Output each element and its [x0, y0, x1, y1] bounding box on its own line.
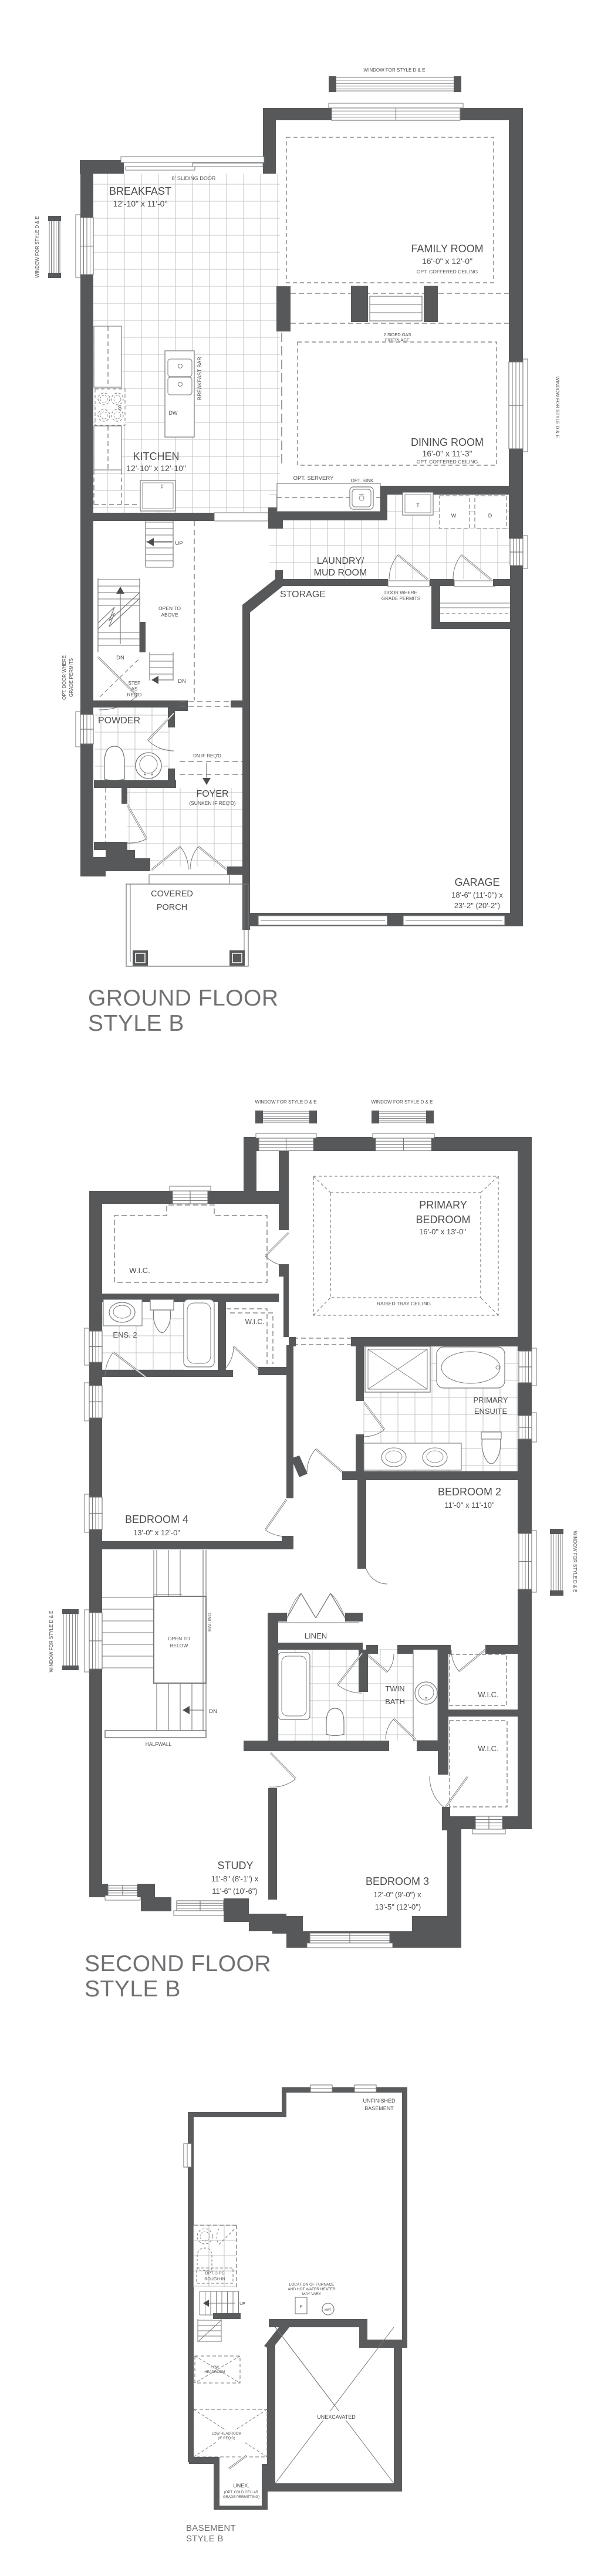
- svg-text:(OPT. COLD CELLAR: (OPT. COLD CELLAR: [224, 2491, 259, 2494]
- svg-text:13'-0" x 12'-0": 13'-0" x 12'-0": [133, 1528, 180, 1537]
- svg-text:LAUNDRY/: LAUNDRY/: [317, 556, 364, 566]
- svg-text:COVERED: COVERED: [151, 889, 193, 899]
- svg-text:D: D: [488, 513, 492, 519]
- svg-text:GARAGE: GARAGE: [454, 876, 499, 888]
- svg-text:GRADE PERMITTING): GRADE PERMITTING): [223, 2496, 259, 2499]
- svg-text:W.I.C.: W.I.C.: [478, 1690, 498, 1699]
- svg-text:11'-0" x 11'-10": 11'-0" x 11'-10": [444, 1501, 495, 1509]
- svg-text:MAY VARY: MAY VARY: [302, 2292, 322, 2296]
- svg-text:RAILING: RAILING: [207, 1613, 212, 1631]
- svg-text:STYLE B: STYLE B: [186, 2534, 224, 2544]
- svg-text:AS: AS: [131, 686, 138, 692]
- svg-text:T: T: [416, 502, 420, 508]
- svg-text:MUD ROOM: MUD ROOM: [314, 568, 367, 578]
- svg-text:11'-6" (10'-6"): 11'-6" (10'-6"): [212, 1887, 258, 1895]
- svg-text:13'-5" (12'-0"): 13'-5" (12'-0"): [375, 1903, 421, 1911]
- svg-text:12'-10" x 11'-0": 12'-10" x 11'-0": [113, 199, 168, 208]
- svg-text:BEDROOM 2: BEDROOM 2: [438, 1486, 501, 1498]
- svg-text:ABOVE: ABOVE: [161, 612, 178, 618]
- svg-text:POWDER: POWDER: [98, 716, 140, 726]
- svg-text:12'-10" x 12'-10": 12'-10" x 12'-10": [126, 463, 186, 473]
- svg-text:DN IF REQ'D: DN IF REQ'D: [193, 753, 221, 759]
- svg-text:12'-0" (9'-0") x: 12'-0" (9'-0") x: [373, 1890, 421, 1899]
- svg-text:PORCH: PORCH: [157, 903, 187, 912]
- svg-text:BEDROOM 3: BEDROOM 3: [366, 1876, 429, 1887]
- svg-text:GRADE PERMITS: GRADE PERMITS: [69, 658, 74, 697]
- svg-text:18'-6" (11'-0") x: 18'-6" (11'-0") x: [451, 891, 503, 899]
- svg-text:OPEN TO: OPEN TO: [168, 1636, 190, 1641]
- svg-text:BEDROOM 4: BEDROOM 4: [125, 1514, 188, 1525]
- svg-text:S: S: [118, 405, 122, 411]
- svg-text:GRADE PERMITS: GRADE PERMITS: [381, 596, 420, 601]
- svg-text:DN: DN: [178, 678, 186, 685]
- svg-text:AND HOT WATER HEATER: AND HOT WATER HEATER: [288, 2287, 336, 2291]
- svg-text:W.I.C.: W.I.C.: [129, 1266, 150, 1275]
- svg-text:2 SIDED GAS: 2 SIDED GAS: [383, 332, 411, 337]
- svg-text:LINEN: LINEN: [305, 1631, 327, 1640]
- svg-text:OPT. SINK: OPT. SINK: [351, 478, 374, 483]
- svg-text:DN: DN: [116, 655, 124, 661]
- svg-text:REQ'D: REQ'D: [127, 692, 142, 698]
- svg-text:OPT. DOOR WHERE: OPT. DOOR WHERE: [62, 655, 67, 700]
- svg-text:LOW: LOW: [211, 2366, 219, 2369]
- svg-text:STUDY: STUDY: [217, 1860, 253, 1871]
- svg-text:BREAKFAST: BREAKFAST: [109, 185, 171, 197]
- svg-text:(SUNKEN IF REQ'D): (SUNKEN IF REQ'D): [189, 800, 236, 806]
- svg-text:(IF REQ'D): (IF REQ'D): [218, 2437, 235, 2440]
- svg-text:16'-0" x 11'-3": 16'-0" x 11'-3": [422, 449, 472, 458]
- svg-text:16'-0" x 13'-0": 16'-0" x 13'-0": [419, 1227, 466, 1236]
- svg-text:BEDROOM: BEDROOM: [416, 1214, 470, 1226]
- svg-text:ENSUITE: ENSUITE: [474, 1407, 508, 1416]
- svg-text:LOCATION OF FURNACE: LOCATION OF FURNACE: [289, 2283, 335, 2287]
- svg-text:PRIMARY: PRIMARY: [419, 1199, 467, 1211]
- svg-text:F: F: [300, 2305, 302, 2309]
- svg-text:OPT. 3-PC: OPT. 3-PC: [205, 2272, 224, 2276]
- svg-text:HWT: HWT: [325, 2308, 331, 2312]
- svg-text:8' SLIDING DOOR: 8' SLIDING DOOR: [172, 175, 216, 181]
- svg-text:WINDOW FOR STYLE D & E: WINDOW FOR STYLE D & E: [572, 1531, 578, 1593]
- svg-text:BREAKFAST BAR: BREAKFAST BAR: [197, 357, 202, 400]
- svg-text:UNEXCAVATED: UNEXCAVATED: [317, 2414, 356, 2420]
- svg-text:UP: UP: [239, 2302, 245, 2306]
- svg-text:W.I.C.: W.I.C.: [478, 1744, 498, 1753]
- svg-text:F: F: [160, 484, 164, 490]
- svg-text:W.I.C.: W.I.C.: [245, 1318, 265, 1326]
- svg-text:11'-8" (8'-1") x: 11'-8" (8'-1") x: [211, 1874, 259, 1883]
- svg-text:LOW HEADROOM: LOW HEADROOM: [212, 2432, 242, 2436]
- svg-text:OPEN TO: OPEN TO: [158, 605, 181, 611]
- svg-text:WINDOW FOR STYLE D & E: WINDOW FOR STYLE D & E: [255, 1099, 317, 1105]
- svg-text:23'-2" (20'-2"): 23'-2" (20'-2"): [454, 901, 501, 910]
- svg-text:OPT. COFFERED CEILING: OPT. COFFERED CEILING: [417, 269, 478, 275]
- svg-text:STORAGE: STORAGE: [280, 590, 326, 600]
- svg-text:KITCHEN: KITCHEN: [133, 451, 179, 462]
- svg-text:STYLE B: STYLE B: [88, 1011, 184, 1036]
- svg-text:STYLE B: STYLE B: [85, 1976, 181, 2002]
- svg-text:ENS. 2: ENS. 2: [113, 1331, 137, 1339]
- svg-text:UNFINISHED: UNFINISHED: [363, 2098, 396, 2104]
- svg-text:SECOND FLOOR: SECOND FLOOR: [85, 1951, 271, 1976]
- svg-text:UP: UP: [175, 540, 183, 547]
- svg-text:UNEX.: UNEX.: [233, 2483, 249, 2489]
- svg-text:BASEMENT: BASEMENT: [186, 2523, 236, 2533]
- svg-text:WINDOW FOR STYLE D & E: WINDOW FOR STYLE D & E: [364, 67, 426, 73]
- svg-text:W: W: [451, 513, 457, 519]
- svg-text:HALFWALL: HALFWALL: [146, 1741, 172, 1747]
- svg-text:BELOW: BELOW: [170, 1643, 188, 1648]
- svg-text:DINING ROOM: DINING ROOM: [411, 436, 484, 448]
- svg-text:RAISED TRAY CEILING: RAISED TRAY CEILING: [377, 1301, 431, 1306]
- svg-text:FAMILY ROOM: FAMILY ROOM: [411, 243, 483, 255]
- svg-text:BATH: BATH: [385, 1697, 405, 1706]
- svg-text:GROUND FLOOR: GROUND FLOOR: [88, 986, 279, 1011]
- svg-text:DW: DW: [169, 410, 178, 416]
- svg-text:PRIMARY: PRIMARY: [474, 1396, 508, 1404]
- svg-text:OPT. COFFERED CEILING: OPT. COFFERED CEILING: [417, 459, 478, 465]
- svg-text:BASEMENT: BASEMENT: [364, 2106, 394, 2111]
- svg-text:DN: DN: [209, 1708, 217, 1715]
- svg-text:16'-0" x 12'-0": 16'-0" x 12'-0": [422, 256, 472, 266]
- svg-text:WINDOW FOR STYLE D & E: WINDOW FOR STYLE D & E: [49, 1611, 54, 1673]
- svg-text:HEADROOM: HEADROOM: [204, 2371, 225, 2374]
- svg-text:FOYER: FOYER: [196, 789, 228, 799]
- svg-text:WINDOW FOR STYLE D & E: WINDOW FOR STYLE D & E: [372, 1099, 433, 1105]
- svg-text:WINDOW FOR STYLE D & E: WINDOW FOR STYLE D & E: [35, 216, 40, 278]
- svg-text:ROUGH-IN: ROUGH-IN: [204, 2277, 225, 2281]
- svg-text:OPT. SERVERY: OPT. SERVERY: [293, 475, 334, 482]
- svg-text:WINDOW FOR STYLE D & E: WINDOW FOR STYLE D & E: [555, 377, 560, 438]
- svg-text:STEP: STEP: [129, 681, 141, 686]
- svg-text:DOOR WHERE: DOOR WHERE: [384, 590, 417, 595]
- svg-text:TWIN: TWIN: [385, 1684, 404, 1693]
